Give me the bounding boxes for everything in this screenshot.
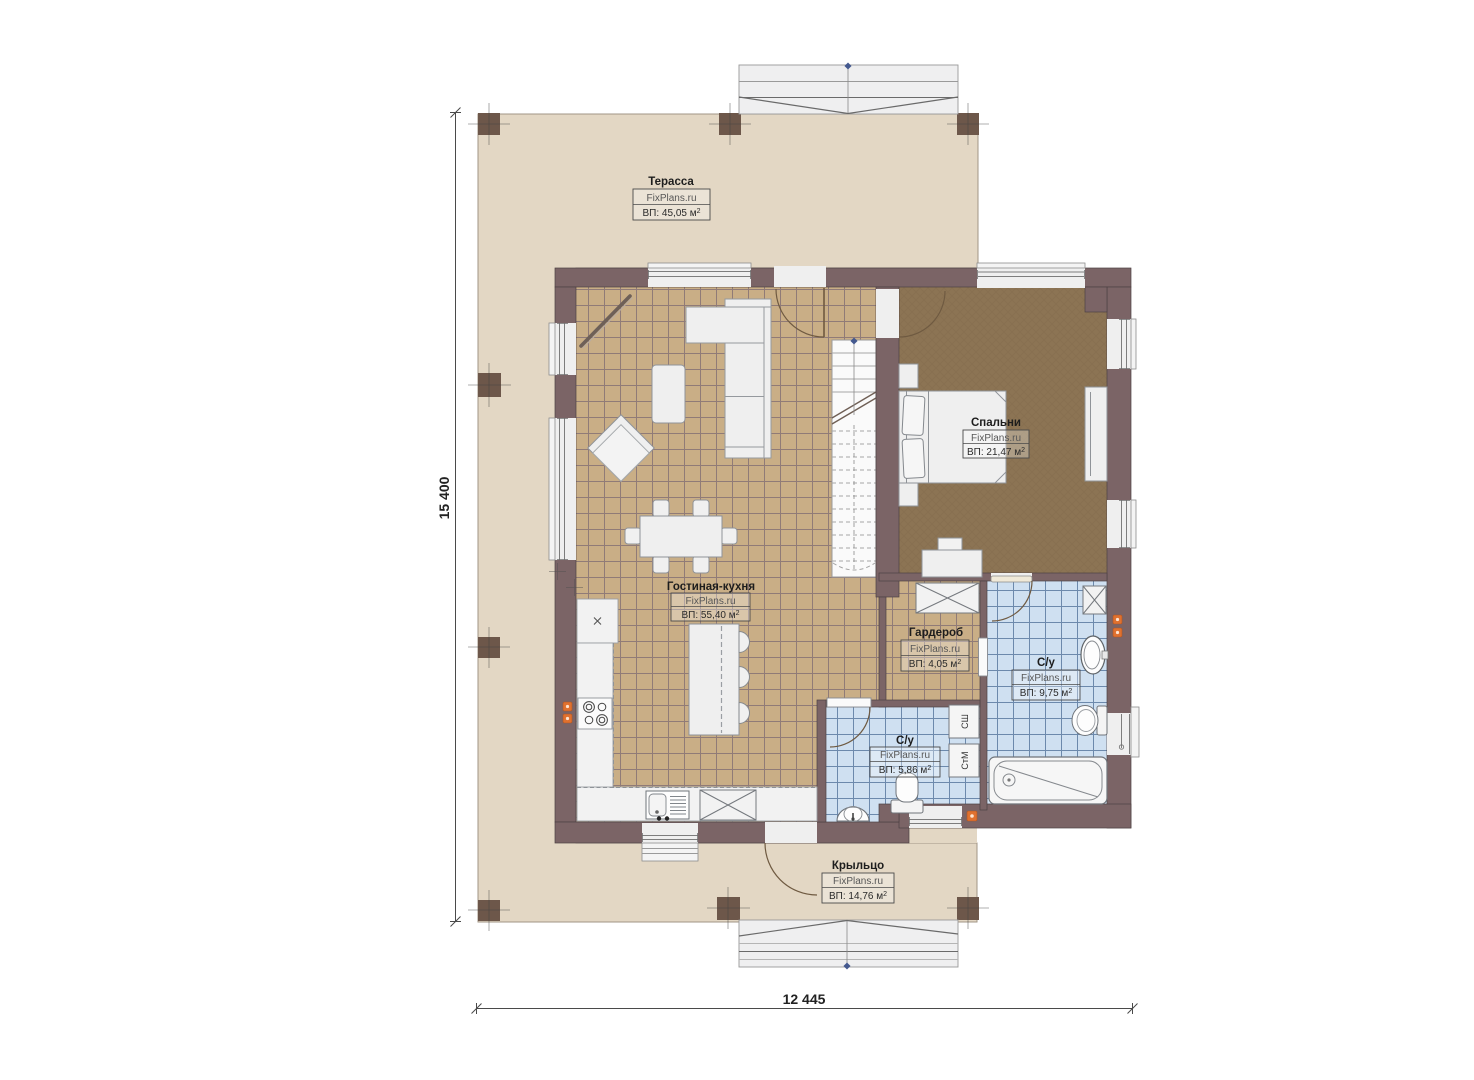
svg-text:С/у: С/у bbox=[1037, 657, 1056, 669]
svg-text:ВП: 45,05 м2: ВП: 45,05 м2 bbox=[643, 208, 701, 219]
svg-text:СтМ: СтМ bbox=[960, 751, 970, 769]
svg-text:FixPlans.ru: FixPlans.ru bbox=[685, 596, 735, 607]
svg-text:Спальни: Спальни bbox=[971, 417, 1021, 429]
svg-text:FixPlans.ru: FixPlans.ru bbox=[1021, 673, 1071, 684]
svg-text:Терасса: Терасса bbox=[648, 176, 694, 188]
svg-text:ВП: 9,75 м2: ВП: 9,75 м2 bbox=[1020, 688, 1073, 699]
svg-text:FixPlans.ru: FixPlans.ru bbox=[910, 644, 960, 655]
svg-text:Гостиная-кухня: Гостиная-кухня bbox=[667, 581, 755, 593]
svg-text:Крыльцо: Крыльцо bbox=[832, 860, 884, 872]
svg-text:FixPlans.ru: FixPlans.ru bbox=[646, 193, 696, 204]
svg-text:ВП: 4,05 м2: ВП: 4,05 м2 bbox=[909, 659, 962, 670]
svg-text:Гардероб: Гардероб bbox=[909, 627, 963, 639]
svg-text:15 400: 15 400 bbox=[436, 476, 452, 519]
svg-text:FixPlans.ru: FixPlans.ru bbox=[971, 433, 1021, 444]
svg-text:С/у: С/у bbox=[896, 735, 915, 747]
svg-text:12 445: 12 445 bbox=[783, 991, 826, 1007]
svg-text:ВП: 14,76 м2: ВП: 14,76 м2 bbox=[829, 891, 887, 902]
svg-text:СШ: СШ bbox=[960, 714, 970, 729]
svg-text:FixPlans.ru: FixPlans.ru bbox=[880, 750, 930, 761]
svg-text:ВП: 5,86 м2: ВП: 5,86 м2 bbox=[879, 765, 932, 776]
svg-text:FixPlans.ru: FixPlans.ru bbox=[833, 876, 883, 887]
svg-text:ВП: 55,40 м2: ВП: 55,40 м2 bbox=[682, 610, 740, 621]
svg-text:ВП: 21,47 м2: ВП: 21,47 м2 bbox=[967, 447, 1025, 458]
